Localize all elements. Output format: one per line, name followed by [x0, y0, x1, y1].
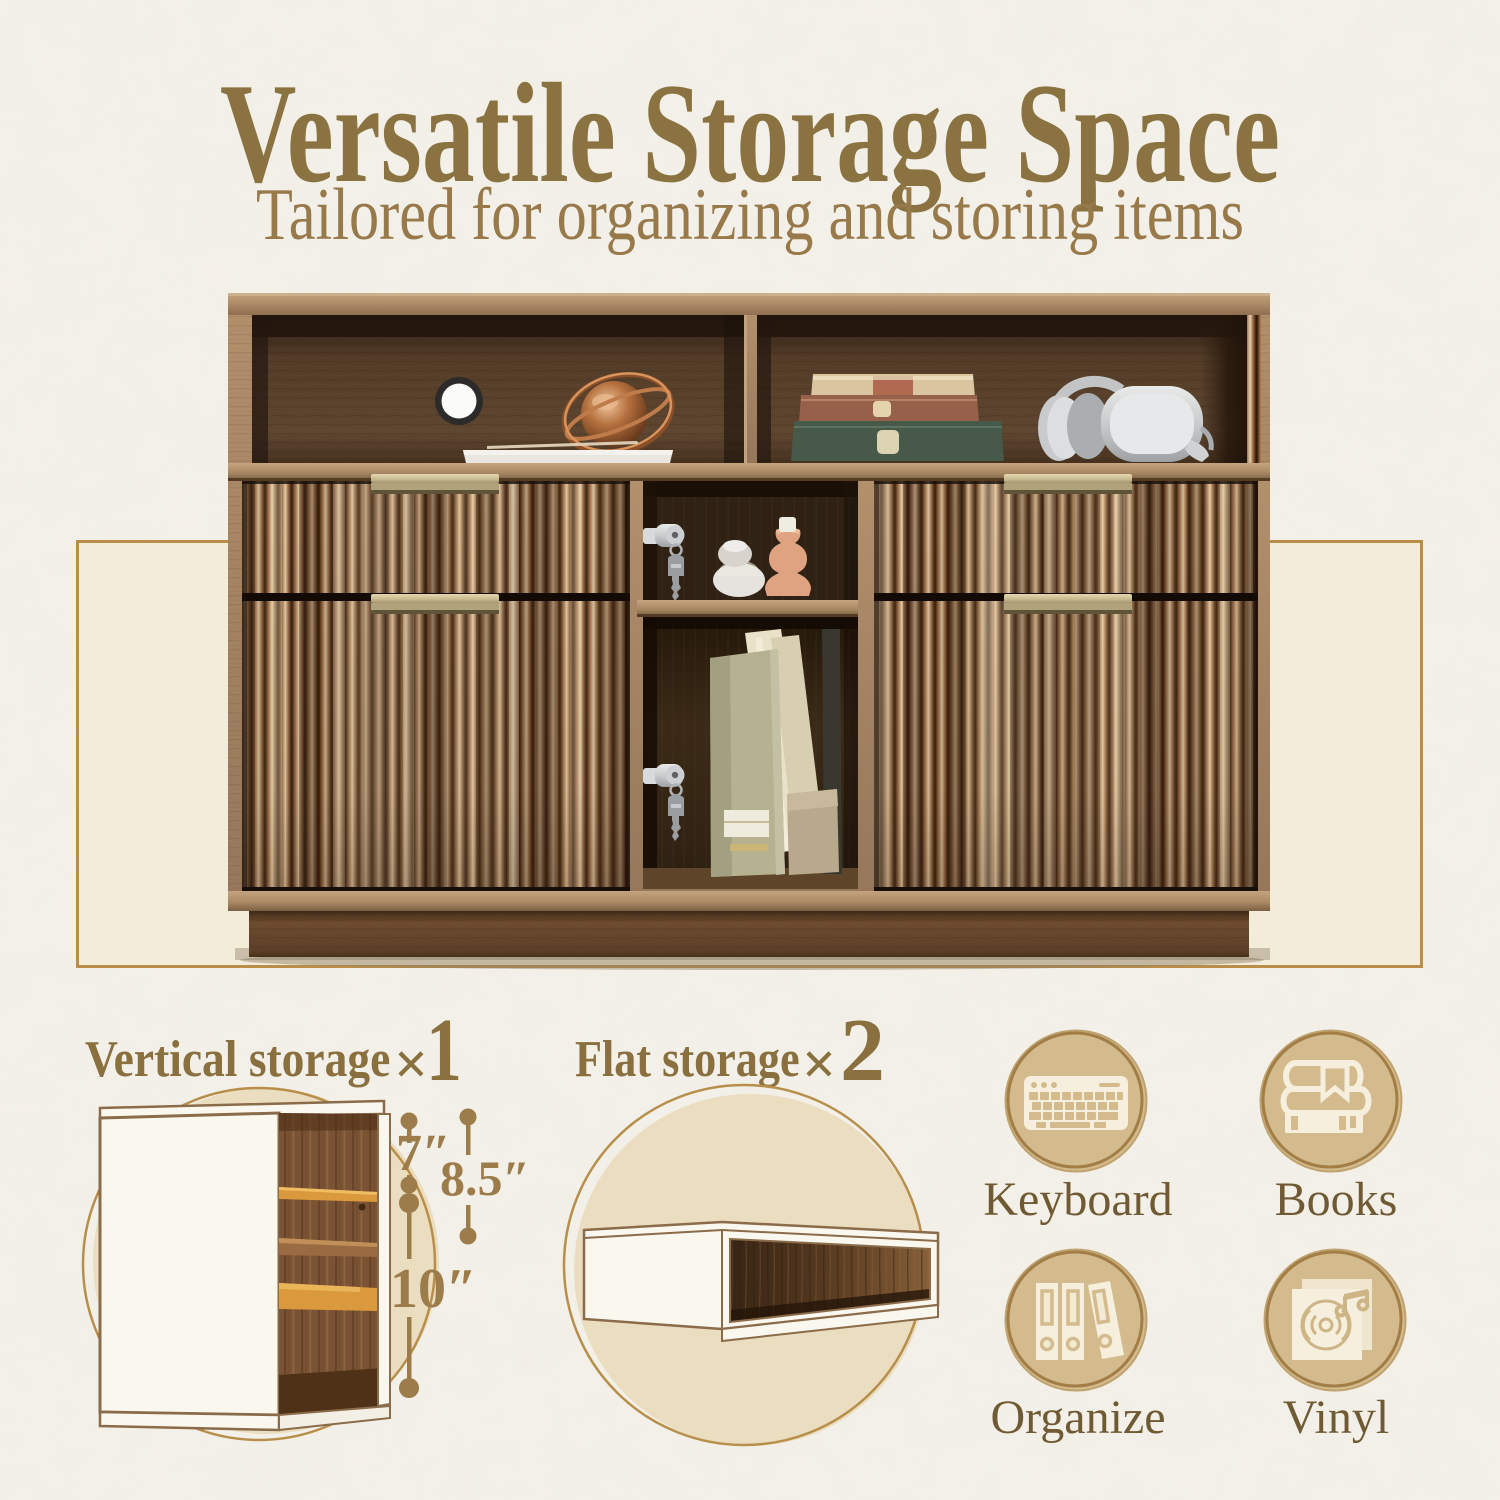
svg-text:8.5″: 8.5″ [440, 1150, 530, 1206]
svg-text:10″: 10″ [390, 1258, 477, 1320]
